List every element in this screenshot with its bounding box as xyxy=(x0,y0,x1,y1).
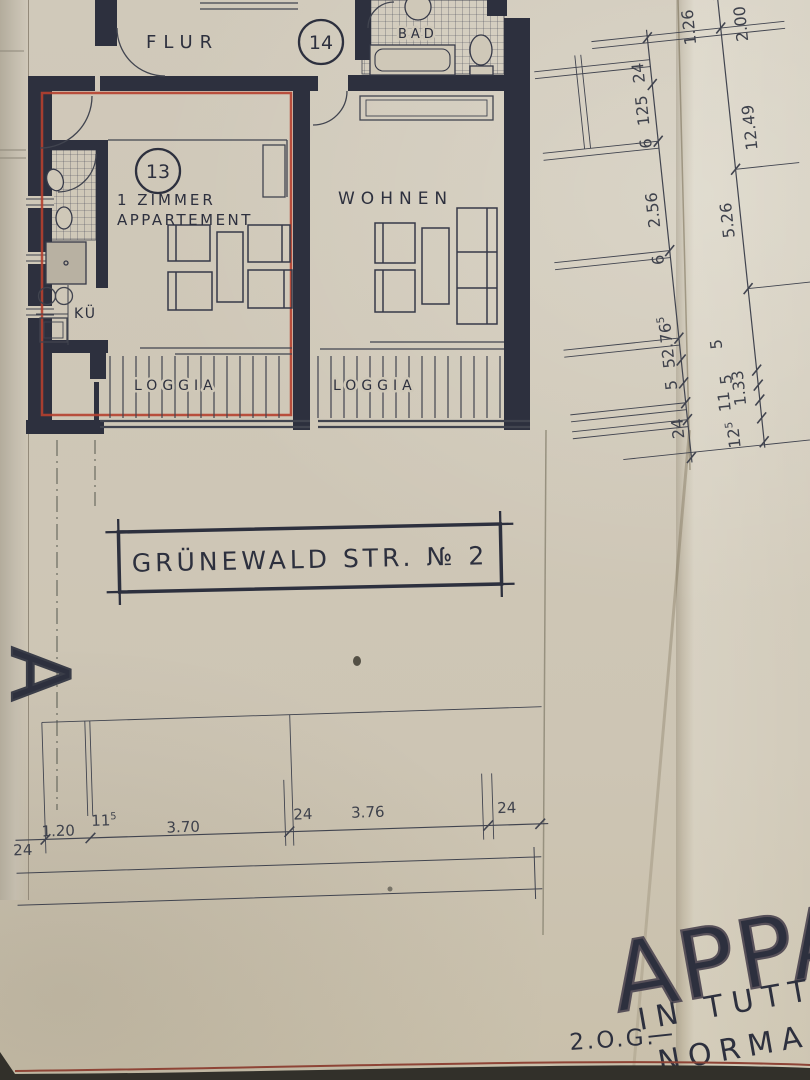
paper-speck xyxy=(388,887,393,892)
dimension-label: 3.76 xyxy=(351,803,385,822)
dimension-label: 5 xyxy=(706,338,726,350)
dimension-label: 1.20 xyxy=(41,821,75,840)
room-label-appartement: APPARTEMENT xyxy=(117,211,253,229)
left-margin-lines xyxy=(0,51,26,158)
toilet-13 xyxy=(56,207,72,229)
footer-titles: APPA IN TUTT NORMAL 2.O.G. — xyxy=(569,884,810,1080)
toilet-14 xyxy=(470,35,492,65)
right-dimension-chains: 2412562.5662.76555241.262.0012.495.26551… xyxy=(527,0,810,475)
washbasin-14 xyxy=(405,0,431,20)
dimension-label: 1.26 xyxy=(678,9,701,46)
dimension-label: 2.765 xyxy=(655,315,678,359)
floor-dash: — xyxy=(646,1018,675,1051)
room-label-flur: FLUR xyxy=(146,32,219,53)
unit-number-14: 14 xyxy=(309,32,333,54)
dimension-label: 6 xyxy=(636,137,656,149)
margin-outline-letter: A xyxy=(0,647,86,702)
bath13-tiles xyxy=(45,150,96,240)
room-label-kitchen: KÜ xyxy=(74,304,97,322)
dimension-label: 5 xyxy=(661,379,681,391)
room-label-loggia-right: LOGGIA xyxy=(333,378,417,394)
dimension-label: 115 xyxy=(91,811,117,830)
paper-blemish xyxy=(353,656,361,666)
room-label-zimmer1: 1 ZIMMER xyxy=(117,191,216,209)
dimension-label: 6 xyxy=(648,254,668,266)
unit-circle-13: 13 xyxy=(136,149,180,193)
dimension-label: 2.56 xyxy=(642,191,665,228)
blueprint-photo: FLUR BAD 1 ZIMMER APPARTEMENT WOHNEN KÜ … xyxy=(0,0,810,1080)
bottom-dimension-chain: 241.201153.70243.7624 xyxy=(9,707,550,916)
unit-number-13: 13 xyxy=(146,161,170,183)
dimension-label: 2.00 xyxy=(730,5,753,42)
dimension-label: 3.70 xyxy=(166,818,200,837)
dimension-label: 5.26 xyxy=(716,202,739,239)
title-box: GRÜNEWALD STR. № 2 xyxy=(105,511,515,606)
dimension-label: 24 xyxy=(667,418,688,440)
shower-13 xyxy=(46,242,86,284)
dimension-label: 24 xyxy=(293,805,313,824)
dimension-label: 125 xyxy=(723,420,745,449)
room-label-bad: BAD xyxy=(398,27,438,42)
street-title: GRÜNEWALD STR. № 2 xyxy=(132,541,489,577)
floorplan-drawing: FLUR BAD 1 ZIMMER APPARTEMENT WOHNEN KÜ … xyxy=(0,0,810,1080)
dimension-label: 12.49 xyxy=(738,104,762,152)
floor-label: 2.O.G. xyxy=(569,1024,657,1056)
dimension-label: 24 xyxy=(13,841,33,860)
room-label-wohnen: WOHNEN xyxy=(338,189,453,209)
room-label-loggia-left: LOGGIA xyxy=(134,378,218,394)
fold-crease-line xyxy=(543,430,546,935)
dimension-label: 24 xyxy=(497,799,517,818)
dimension-label: 5 xyxy=(659,357,679,369)
dimension-label: 11 xyxy=(714,391,735,413)
dimension-label: 125 xyxy=(631,94,653,126)
dimension-label: 24 xyxy=(628,62,649,84)
tick-slashes xyxy=(638,0,770,463)
unit-circle-14: 14 xyxy=(299,20,343,64)
